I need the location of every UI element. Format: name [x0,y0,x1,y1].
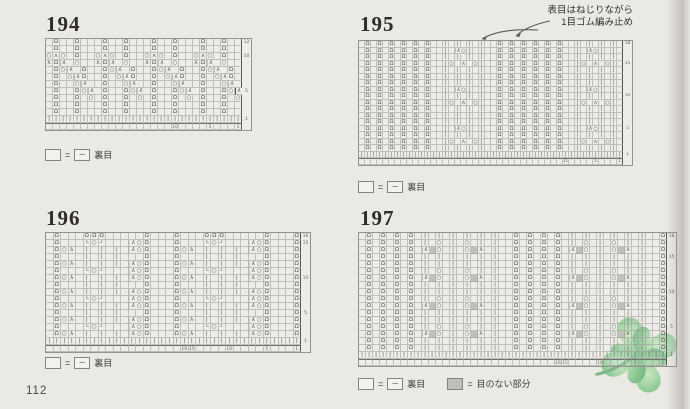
stitch-cell: ○ [136,303,144,310]
stitch-cell [159,296,167,303]
stitch-cell: λ [158,60,165,67]
stitch-cell [646,324,653,331]
stitch-cell: Ω [366,240,373,247]
stitch-cell [653,268,660,275]
stitch-cell [443,310,450,317]
stitch-cell: Ω [151,109,158,116]
stitch-cell: Ω [394,275,401,282]
stitch-cell [548,240,555,247]
stitch-cell: Ω [513,275,520,282]
stitch-cell [235,46,242,53]
stitch-cell [590,282,597,289]
stitch-cell [46,74,53,81]
stitch-cell [109,81,116,88]
stitch-cell [106,296,114,303]
stitch-cell: Ω [294,233,302,240]
stitch-cell [387,254,394,261]
stitch-cell: Ω [102,102,109,109]
stitch-cell [211,282,219,289]
stitch-cell: | [76,338,84,345]
stitch-cell: Ω [294,282,302,289]
stitch-number-label: 10 [226,345,234,352]
stitch-cell [181,310,189,317]
stitch-cell [520,240,527,247]
stitch-cell: Ω [294,275,302,282]
stitch-cell [618,247,625,254]
stitch-cell: ┘ [219,240,227,247]
stitch-cell: | [219,310,227,317]
stitch-cell [186,74,193,81]
stitch-cell [653,310,660,317]
stitch-cell [241,261,249,268]
stitch-cell [159,317,167,324]
stitch-cell: Ω [200,39,207,46]
stitch-cell: λ [129,296,137,303]
row-number-label [667,331,676,338]
stitch-cell: Ω [264,247,272,254]
stitch-cell [165,39,172,46]
stitch-cell [151,275,159,282]
stitch-number-label: 1 [294,345,302,352]
stitch-cell [373,254,380,261]
stitch-number-label [88,123,95,130]
stitch-cell [181,296,189,303]
stitch-number-label [136,345,144,352]
stitch-cell: ○ [91,324,99,331]
stitch-cell: λ [193,60,200,67]
stitch-cell: ○ [136,268,144,275]
stitch-cell [196,331,204,338]
stitch-cell [165,46,172,53]
stitch-cell [429,268,436,275]
stitch-cell [632,254,639,261]
stitch-cell [632,345,639,352]
stitch-cell [632,338,639,345]
stitch-cell [590,247,597,254]
stitch-cell: | [492,233,499,240]
row-number-label [242,67,251,74]
stitch-cell [286,247,294,254]
stitch-number-label: 15 [189,345,197,352]
stitch-cell: | [200,116,207,123]
stitch-cell: λ [69,247,77,254]
stitch-cell: ʌ [53,53,60,60]
stitch-cell [241,324,249,331]
stitch-cell: Ω [91,233,99,240]
stitch-cell [471,254,478,261]
stitch-number-label [174,345,182,352]
stitch-cell [653,261,660,268]
stitch-cell: | [204,275,212,282]
stitch-cell: Ω [527,261,534,268]
stitch-number-label [534,359,541,366]
stitch-cell: Ω [555,233,562,240]
stitch-cell [618,324,625,331]
stitch-cell: Ω [408,303,415,310]
stitch-cell [196,289,204,296]
stitch-cell [373,247,380,254]
stitch-cell: | [46,338,54,345]
stitch-cell [548,254,555,261]
stitch-cell [159,289,167,296]
stitch-cell [590,268,597,275]
stitch-cell: Ω [527,345,534,352]
stitch-cell [211,303,219,310]
stitch-number-label [492,359,499,366]
stitch-cell: λ [69,275,77,282]
stitch-cell [137,60,144,67]
stitch-number-label: 5 [207,123,214,130]
stitch-cell [166,296,174,303]
stitch-cell [279,233,287,240]
stitch-cell: | [219,282,227,289]
stitch-cell: λ [189,317,197,324]
stitch-cell [279,317,287,324]
stitch-cell: Ω [264,233,272,240]
stitch-cell [373,261,380,268]
stitch-cell [373,268,380,275]
stitch-number-label: 16 [181,345,189,352]
stitch-cell [91,261,99,268]
stitch-cell: ○ [436,247,443,254]
stitch-cell [590,233,597,240]
stitch-cell [121,254,129,261]
stitch-cell [60,95,67,102]
stitch-cell [196,296,204,303]
stitch-cell [471,247,478,254]
stitch-cell [604,324,611,331]
stitch-cell: | [478,233,485,240]
stitch-cell [226,247,234,254]
legend-196: = ─ 裏目 [45,356,112,369]
stitch-cell [116,46,123,53]
stitch-cell [471,289,478,296]
stitch-cell [562,303,569,310]
stitch-cell [144,95,151,102]
row-number-label [301,261,310,268]
stitch-cell [271,254,279,261]
stitch-cell [196,282,204,289]
stitch-cell: λ [221,74,228,81]
stitch-cell [241,296,249,303]
stitch-cell [46,95,53,102]
stitch-cell: | [639,331,646,338]
stitch-cell: λ [189,261,197,268]
blank-stitch-box-icon [358,378,374,390]
stitch-cell [241,240,249,247]
stitch-cell: Ω [144,233,152,240]
row-number-label: 5 [667,324,676,331]
stitch-cell: | [436,282,443,289]
stitch-cell [359,233,366,240]
stitch-cell: Ω [172,109,179,116]
stitch-cell: λ [129,275,137,282]
stitch-cell: ○ [136,289,144,296]
stitch-cell: | [436,233,443,240]
stitch-cell [271,268,279,275]
stitch-cell: Ω [366,233,373,240]
stitch-cell [144,67,151,74]
stitch-cell [196,268,204,275]
stitch-cell [81,46,88,53]
stitch-number-label [221,123,228,130]
stitch-cell [279,296,287,303]
stitch-cell [114,240,122,247]
stitch-cell: λ [249,324,257,331]
stitch-cell: | [422,268,429,275]
stitch-cell [653,331,660,338]
stitch-cell [506,331,513,338]
stitch-cell [443,331,450,338]
legend-195: = ─ 裏目 [358,180,425,193]
stitch-number-label [84,345,92,352]
stitch-cell: Ω [380,275,387,282]
stitch-number-label [279,345,287,352]
stitch-cell [196,247,204,254]
stitch-cell [121,303,129,310]
stitch-cell: Ω [74,46,81,53]
stitch-cell [534,247,541,254]
stitch-cell: Ω [102,81,109,88]
stitch-cell [234,240,242,247]
stitch-cell: Ω [513,331,520,338]
stitch-cell [121,296,129,303]
stitch-cell: | [569,352,576,359]
stitch-cell: | [450,331,457,338]
stitch-cell [226,268,234,275]
stitch-cell: Ω [200,74,207,81]
stitch-cell: | [485,352,492,359]
no-stitch-label: 目のない部分 [477,377,531,390]
stitch-cell: ○ [211,268,219,275]
stitch-cell: | [569,310,576,317]
stitch-cell: | [611,289,618,296]
stitch-cell [485,247,492,254]
stitch-cell: λ [172,74,179,81]
stitch-cell: Ω [174,254,182,261]
stitch-cell: | [625,338,632,345]
stitch-cell: | [597,247,604,254]
stitch-cell [69,268,77,275]
stitch-cell: λ [625,303,632,310]
stitch-cell [235,53,242,60]
stitch-cell [485,338,492,345]
stitch-cell [226,317,234,324]
stitch-cell: | [639,240,646,247]
stitch-cell: Ω [394,268,401,275]
row-number-label [242,81,251,88]
stitch-cell: ○ [436,240,443,247]
stitch-cell: | [478,268,485,275]
stitch-cell: | [597,310,604,317]
stitch-cell: | [99,303,107,310]
stitch-cell: | [436,289,443,296]
stitch-cell [137,102,144,109]
stitch-cell: Ω [123,39,130,46]
stitch-cell: ○ [256,324,264,331]
stitch-cell: | [464,282,471,289]
stitch-cell: λ [129,317,137,324]
stitch-cell: | [219,338,227,345]
stitch-number-label [121,345,129,352]
stitch-cell [359,289,366,296]
stitch-cell: | [256,338,264,345]
stitch-cell: | [179,116,186,123]
stitch-cell [576,296,583,303]
row-number-label [667,261,676,268]
stitch-cell [271,310,279,317]
stitch-cell: ○ [436,303,443,310]
stitch-cell [76,247,84,254]
stitch-cell [123,67,130,74]
stitch-cell [106,282,114,289]
stitch-cell: | [639,310,646,317]
stitch-cell [604,247,611,254]
row-number-label: 1 [242,116,251,123]
stitch-cell [159,268,167,275]
stitch-cell [506,268,513,275]
stitch-cell [387,233,394,240]
stitch-cell [548,275,555,282]
stitch-cell: Ω [660,324,667,331]
stitch-cell: | [492,240,499,247]
stitch-cell [653,240,660,247]
stitch-cell [166,289,174,296]
stitch-cell: Ω [555,289,562,296]
stitch-cell: Ω [174,296,182,303]
stitch-cell: | [478,352,485,359]
stitch-cell: Ω [366,275,373,282]
stitch-cell [653,296,660,303]
stitch-cell: | [590,352,597,359]
stitch-cell: ○ [193,53,200,60]
stitch-cell [241,268,249,275]
stitch-cell: Ω [174,310,182,317]
purl-label: 裏目 [94,148,112,161]
stitch-cell: | [204,247,212,254]
row-number-label [667,240,676,247]
stitch-cell: Ω [53,102,60,109]
stitch-number-label [548,359,555,366]
stitch-cell: └ [84,268,92,275]
stitch-cell: | [464,233,471,240]
stitch-cell: Ω [99,233,107,240]
stitch-cell: | [130,116,137,123]
stitch-cell: | [114,338,122,345]
stitch-cell: λ [129,247,137,254]
stitch-cell: Ω [294,289,302,296]
stitch-cell [106,310,114,317]
stitch-cell: | [562,352,569,359]
stitch-cell: Ω [380,240,387,247]
stitch-cell [109,39,116,46]
stitch-cell [46,289,54,296]
stitch-number-label [590,359,597,366]
stitch-cell [226,282,234,289]
stitch-cell [136,282,144,289]
stitch-cell: Ω [54,317,62,324]
stitch-cell [471,303,478,310]
stitch-cell: | [548,352,555,359]
stitch-cell [159,275,167,282]
stitch-cell: Ω [527,268,534,275]
stitch-cell: Ω [174,261,182,268]
stitch-cell [106,317,114,324]
stitch-cell: Ω [513,268,520,275]
stitch-cell [95,39,102,46]
stitch-cell: Ω [294,324,302,331]
stitch-cell [207,95,214,102]
stitch-cell [207,102,214,109]
stitch-cell: | [450,275,457,282]
stitch-cell [457,268,464,275]
stitch-cell: Ω [527,233,534,240]
stitch-cell: Ω [123,88,130,95]
stitch-cell [235,39,242,46]
stitch-cell: | [264,338,272,345]
stitch-cell [604,240,611,247]
stitch-cell: λ [422,331,429,338]
stitch-cell [46,67,53,74]
stitch-cell [189,268,197,275]
stitch-cell: | [464,261,471,268]
stitch-cell [520,331,527,338]
row-number-label: 16 [301,233,310,240]
row-number-label [242,109,251,116]
stitch-cell: Ω [264,324,272,331]
stitch-cell [429,317,436,324]
stitch-cell: Ω [54,289,62,296]
stitch-cell: ○ [144,53,151,60]
stitch-cell [193,46,200,53]
stitch-cell: Ω [294,310,302,317]
stitch-cell [130,95,137,102]
stitch-cell: Ω [366,296,373,303]
stitch-cell [618,345,625,352]
stitch-cell: Ω [366,303,373,310]
stitch-cell [646,275,653,282]
stitch-cell [604,310,611,317]
stitch-cell [186,53,193,60]
stitch-cell: ○ [130,88,137,95]
stitch-cell: λ [46,60,53,67]
stitch-cell: ┘ [219,268,227,275]
stitch-cell [373,317,380,324]
row-number-label [667,247,676,254]
stitch-cell: Ω [144,289,152,296]
stitch-number-label [625,359,632,366]
stitch-cell: | [84,247,92,254]
stitch-cell [76,324,84,331]
stitch-cell [520,324,527,331]
stitch-cell [241,275,249,282]
stitch-cell: Ω [555,247,562,254]
stitch-cell: Ω [294,317,302,324]
stitch-number-label: 1 [235,123,242,130]
stitch-cell [618,338,625,345]
stitch-cell [618,282,625,289]
stitch-cell: λ [88,88,95,95]
stitch-cell: ○ [235,95,242,102]
stitch-cell: ○ [179,88,186,95]
stitch-cell: Ω [200,95,207,102]
stitch-cell: Ω [394,296,401,303]
stitch-cell [106,289,114,296]
row-number-label [301,268,310,275]
stitch-cell: | [450,247,457,254]
stitch-cell: | [464,317,471,324]
stitch-cell [69,233,77,240]
